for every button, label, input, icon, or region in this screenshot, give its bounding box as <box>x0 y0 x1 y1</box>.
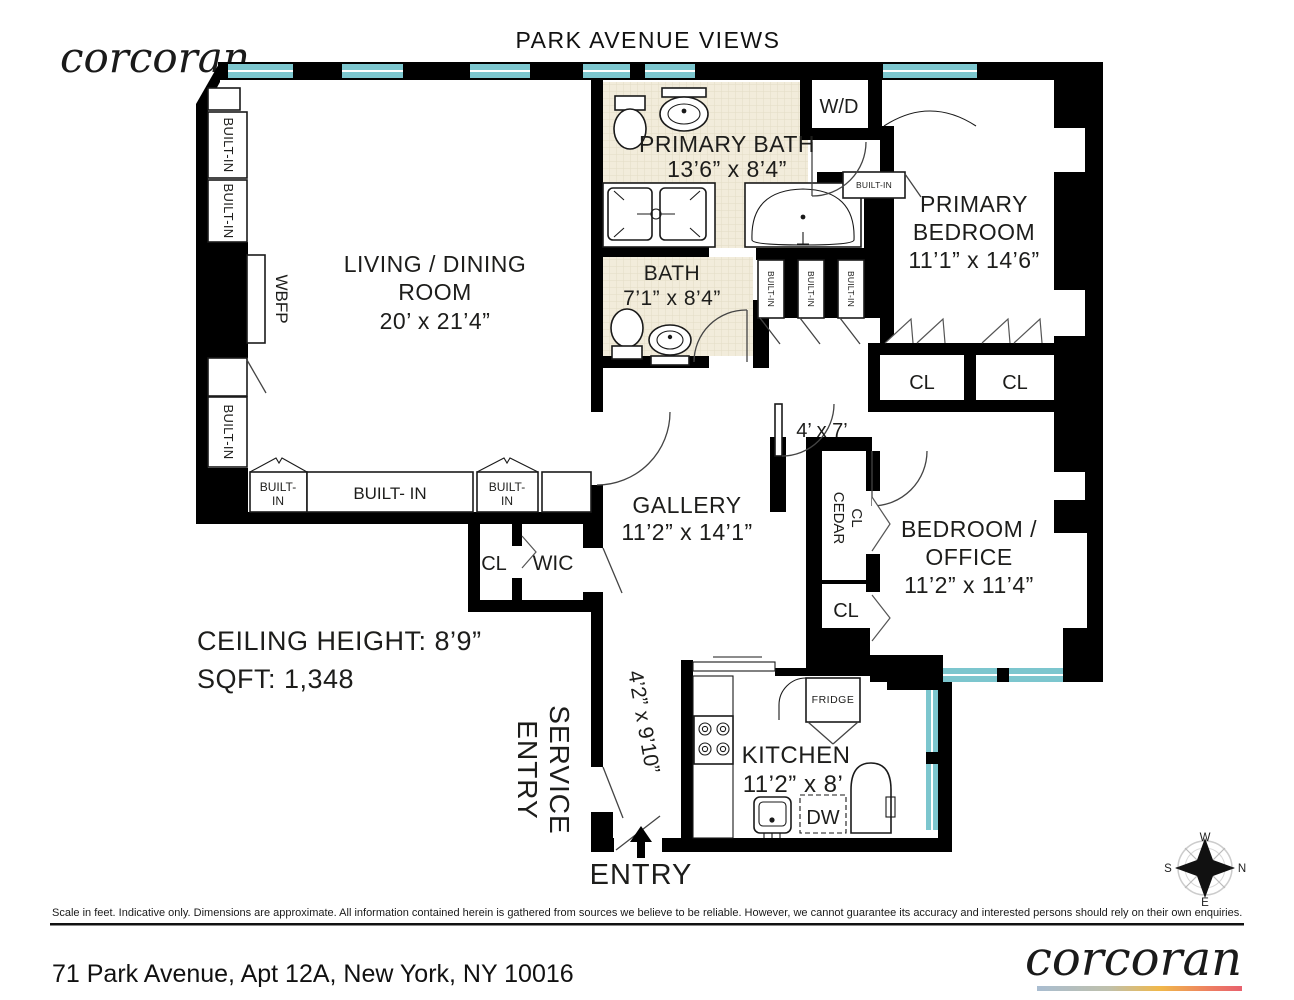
built-in-label: BUILT-IN <box>221 118 236 173</box>
footer: Scale in feet. Indicative only. Dimensio… <box>50 907 1244 991</box>
hall-door-leaf <box>775 404 782 456</box>
compass-s: S <box>1164 863 1172 875</box>
disclaimer-text: Scale in feet. Indicative only. Dimensio… <box>52 907 1242 919</box>
sink-drain <box>668 335 672 339</box>
bedroom-office-name-l2: OFFICE <box>925 544 1012 570</box>
living-name-l2: ROOM <box>398 279 472 305</box>
closet-bifold-door <box>917 319 945 343</box>
service-entry-door <box>603 767 623 818</box>
window-bedroom-office <box>943 668 1063 682</box>
kitchen-label: KITCHEN 11’2” x 8’ <box>742 742 851 798</box>
fireplace <box>247 255 265 343</box>
gallery-door <box>597 412 670 485</box>
sink-backsplash <box>662 88 706 97</box>
sink-icon <box>649 325 691 355</box>
living-builtin-row: BUILT- IN BUILT- IN BUILT- IN <box>250 458 591 512</box>
cabinet-door-line <box>247 360 266 393</box>
kitchen-dims: 11’2” x 8’ <box>743 771 844 798</box>
built-in-label: BUILT-IN <box>806 271 816 307</box>
living-name-l1: LIVING / DINING <box>344 251 527 277</box>
toilet-tank <box>615 96 645 110</box>
bedroom-arch <box>884 111 976 126</box>
gallery-dims: 11’2” x 14’1” <box>621 519 752 545</box>
gallery-label: GALLERY 11’2” x 14’1” <box>621 492 752 545</box>
primary-bath-dims: 13’6” x 8’4” <box>667 156 787 182</box>
address-text: 71 Park Avenue, Apt 12A, New York, NY 10… <box>52 960 574 988</box>
closet-door-lines <box>760 318 860 344</box>
primary-bedroom-label: PRIMARY BEDROOM 11’1” x 14’6” <box>908 191 1039 273</box>
floorplan-page: corcoran PARK AVENUE VIEWS <box>0 0 1294 1000</box>
closet-bifold-door <box>982 319 1010 343</box>
sink-backsplash <box>651 356 689 365</box>
bedroom-office-dims: 11’2” x 11’4” <box>904 572 1034 598</box>
primary-bedroom-name-l1: PRIMARY <box>920 191 1028 217</box>
kitchen-name: KITCHEN <box>742 742 851 769</box>
wic-label: WIC <box>533 552 574 575</box>
fridge-door-lines <box>808 722 858 744</box>
tub-drain <box>801 215 806 220</box>
annotations: CEILING HEIGHT: 8’9” SQFT: 1,348 SERVICE… <box>197 626 692 891</box>
service-entry-label-l2: ENTRY <box>512 720 543 819</box>
cl-label: CL <box>481 553 507 575</box>
bath-dims: 7’1” x 8’4” <box>623 287 721 310</box>
compass-rose: W N S E <box>1164 832 1246 909</box>
cabinet-door-line <box>905 174 921 197</box>
floorplan-svg: corcoran PARK AVENUE VIEWS <box>0 0 1294 1000</box>
dw-label: DW <box>806 807 839 829</box>
cl-label: CL <box>1002 372 1028 394</box>
page-title: PARK AVENUE VIEWS <box>516 27 781 53</box>
fridge-label: FRIDGE <box>812 694 855 706</box>
sink-drain <box>769 817 774 822</box>
cedar-label-l1: CEDAR <box>830 492 847 545</box>
brand-gradient-bar <box>1037 986 1242 991</box>
built-in-label-l1: BUILT- <box>260 480 296 494</box>
cedar-closet-label: CEDAR CL <box>830 492 865 545</box>
sink-icon <box>660 97 708 131</box>
bedroom-office-name-l1: BEDROOM / <box>901 516 1037 542</box>
cl-closet-door <box>872 595 890 641</box>
sink-drain <box>682 109 687 114</box>
built-in-cabinet <box>542 472 591 512</box>
cedar-label-l2: CL <box>848 508 865 527</box>
cabinet-gable <box>250 458 307 472</box>
toilet-tank <box>612 346 642 359</box>
cabinet-gable <box>477 458 538 472</box>
built-in-label: BUILT-IN <box>221 184 236 239</box>
entry-marker <box>630 826 652 858</box>
gallery-name: GALLERY <box>632 492 741 518</box>
entry-hall-dims: 4’2” x 9’10” <box>623 669 664 775</box>
pass-through-counter <box>693 662 775 671</box>
entry-arrow-icon <box>630 826 652 858</box>
built-in-label: BUILT-IN <box>846 271 856 307</box>
cl-label: CL <box>909 372 935 394</box>
compass-star-icon <box>1175 838 1235 898</box>
stove-icon <box>694 716 733 764</box>
built-in-label-l2: IN <box>501 494 513 508</box>
brand-logo-bottom: corcoran <box>1025 931 1242 987</box>
entry-label: ENTRY <box>590 859 693 891</box>
built-in-label: BUILT-IN <box>221 405 236 460</box>
kitchen-door-leaf <box>851 763 891 833</box>
primary-bath-name: PRIMARY BATH <box>639 131 815 157</box>
bedroom-office-door <box>872 451 927 506</box>
built-in-label: BUILT-IN <box>766 271 776 307</box>
niche <box>208 358 247 396</box>
built-in-label-l1: BUILT- <box>489 480 525 494</box>
hall-dims: 4’ x 7’ <box>796 420 848 442</box>
primary-bedroom-name-l2: BEDROOM <box>913 219 1035 245</box>
living-dims: 20’ x 21’4” <box>380 308 491 334</box>
wic-door <box>603 548 622 593</box>
fridge-door-arc <box>779 678 806 720</box>
sqft-text: SQFT: 1,348 <box>197 664 354 694</box>
bedroom-office-label: BEDROOM / OFFICE 11’2” x 11’4” <box>901 516 1037 598</box>
footer-divider <box>50 923 1244 926</box>
toilet-icon <box>611 309 643 347</box>
closet-bifold-door <box>1014 319 1042 343</box>
cl-label: CL <box>833 600 859 622</box>
compass-n: N <box>1238 863 1246 875</box>
ceiling-height-text: CEILING HEIGHT: 8’9” <box>197 626 482 656</box>
built-in-wide-label: BUILT- IN <box>353 484 426 503</box>
window-kitchen <box>926 690 938 830</box>
living-room-label: LIVING / DINING ROOM 20’ x 21’4” <box>344 251 527 334</box>
built-in-label-l2: IN <box>272 494 284 508</box>
service-entry-label-l1: SERVICE <box>544 705 575 834</box>
wbfp-label: WBFP <box>272 274 291 323</box>
compass-w: W <box>1200 832 1211 844</box>
primary-bedroom-dims: 11’1” x 14’6” <box>908 247 1039 273</box>
built-in-label: BUILT-IN <box>856 180 892 190</box>
washer-dryer: W/D <box>812 82 868 128</box>
bath-name: BATH <box>644 262 700 285</box>
niche <box>208 88 240 110</box>
wd-label: W/D <box>820 96 859 118</box>
